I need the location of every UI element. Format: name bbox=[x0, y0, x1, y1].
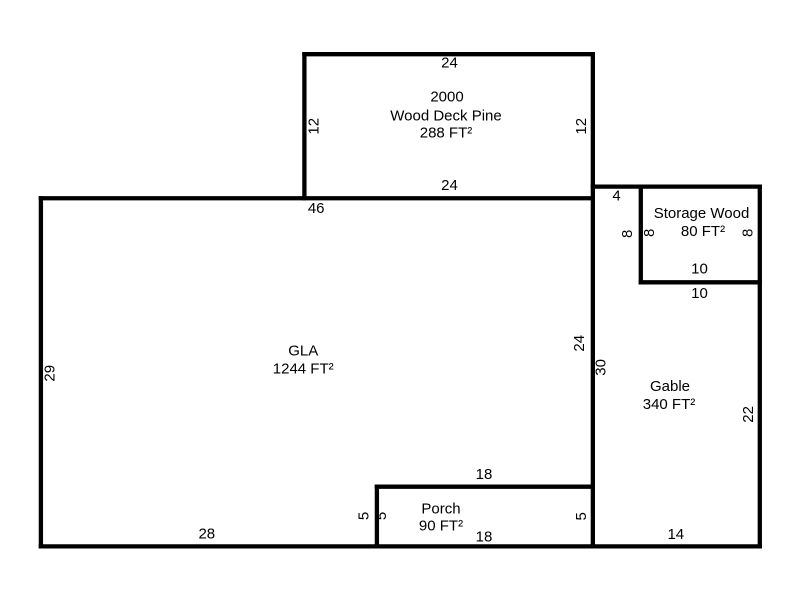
svg-text:18: 18 bbox=[476, 529, 493, 546]
svg-text:18: 18 bbox=[476, 466, 493, 483]
svg-text:30: 30 bbox=[592, 359, 609, 376]
svg-text:8: 8 bbox=[641, 229, 658, 237]
svg-text:29: 29 bbox=[41, 365, 58, 382]
svg-text:8: 8 bbox=[739, 229, 756, 237]
svg-text:24: 24 bbox=[571, 335, 588, 352]
svg-text:24: 24 bbox=[441, 55, 458, 72]
svg-text:5: 5 bbox=[355, 512, 372, 520]
svg-text:24: 24 bbox=[441, 177, 458, 194]
svg-text:340 FT²: 340 FT² bbox=[643, 396, 696, 413]
svg-text:46: 46 bbox=[308, 200, 325, 217]
svg-text:10: 10 bbox=[691, 261, 708, 278]
svg-text:80 FT²: 80 FT² bbox=[681, 223, 725, 240]
svg-text:12: 12 bbox=[573, 118, 590, 135]
svg-text:288 FT²: 288 FT² bbox=[420, 125, 473, 142]
svg-text:Porch: Porch bbox=[421, 501, 460, 518]
svg-text:GLA: GLA bbox=[288, 343, 318, 360]
svg-text:4: 4 bbox=[612, 188, 620, 205]
svg-text:5: 5 bbox=[573, 512, 590, 520]
svg-text:Storage Wood: Storage Wood bbox=[654, 205, 750, 222]
svg-text:Wood Deck Pine: Wood Deck Pine bbox=[390, 108, 501, 125]
svg-text:10: 10 bbox=[691, 285, 708, 302]
svg-text:90 FT²: 90 FT² bbox=[419, 518, 463, 535]
svg-text:14: 14 bbox=[667, 526, 684, 543]
svg-text:5: 5 bbox=[373, 512, 390, 520]
svg-text:2000: 2000 bbox=[430, 89, 463, 106]
svg-text:22: 22 bbox=[740, 406, 757, 423]
svg-text:12: 12 bbox=[306, 118, 323, 135]
svg-text:Gable: Gable bbox=[650, 378, 690, 395]
svg-text:8: 8 bbox=[619, 230, 636, 238]
svg-text:28: 28 bbox=[198, 526, 215, 543]
svg-text:1244 FT²: 1244 FT² bbox=[273, 361, 334, 378]
